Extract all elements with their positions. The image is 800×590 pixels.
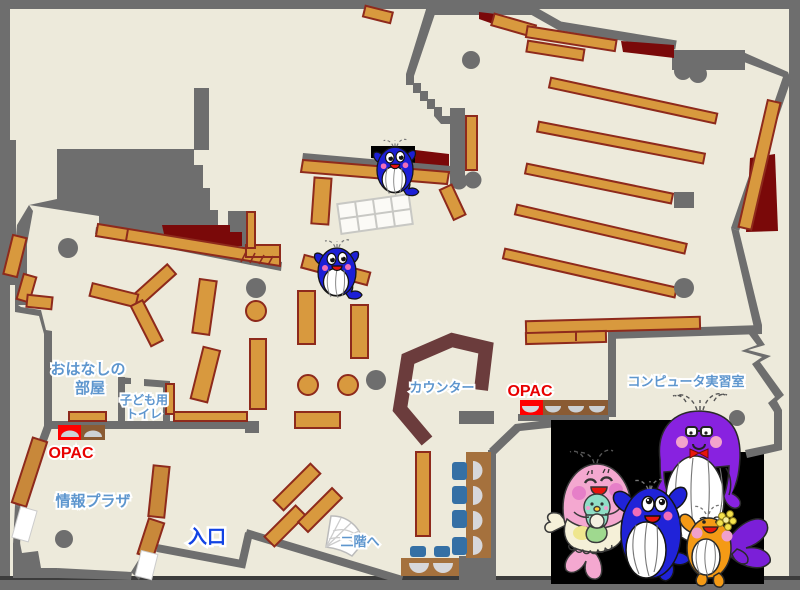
svg-text:子ども用: 子ども用 (120, 393, 168, 407)
svg-text:入口: 入口 (188, 526, 226, 548)
svg-text:部屋: 部屋 (75, 379, 105, 397)
svg-text:OPAC: OPAC (48, 445, 93, 462)
svg-text:おはなしの: おはなしの (50, 361, 125, 378)
svg-text:情報プラザ: 情報プラザ (55, 492, 130, 510)
svg-text:コンピュータ実習室: コンピュータ実習室 (627, 374, 744, 389)
svg-text:トイレ: トイレ (126, 407, 162, 421)
svg-text:カウンター: カウンター (409, 380, 474, 395)
svg-text:OPAC: OPAC (507, 383, 552, 400)
svg-text:二階へ: 二階へ (340, 534, 379, 549)
